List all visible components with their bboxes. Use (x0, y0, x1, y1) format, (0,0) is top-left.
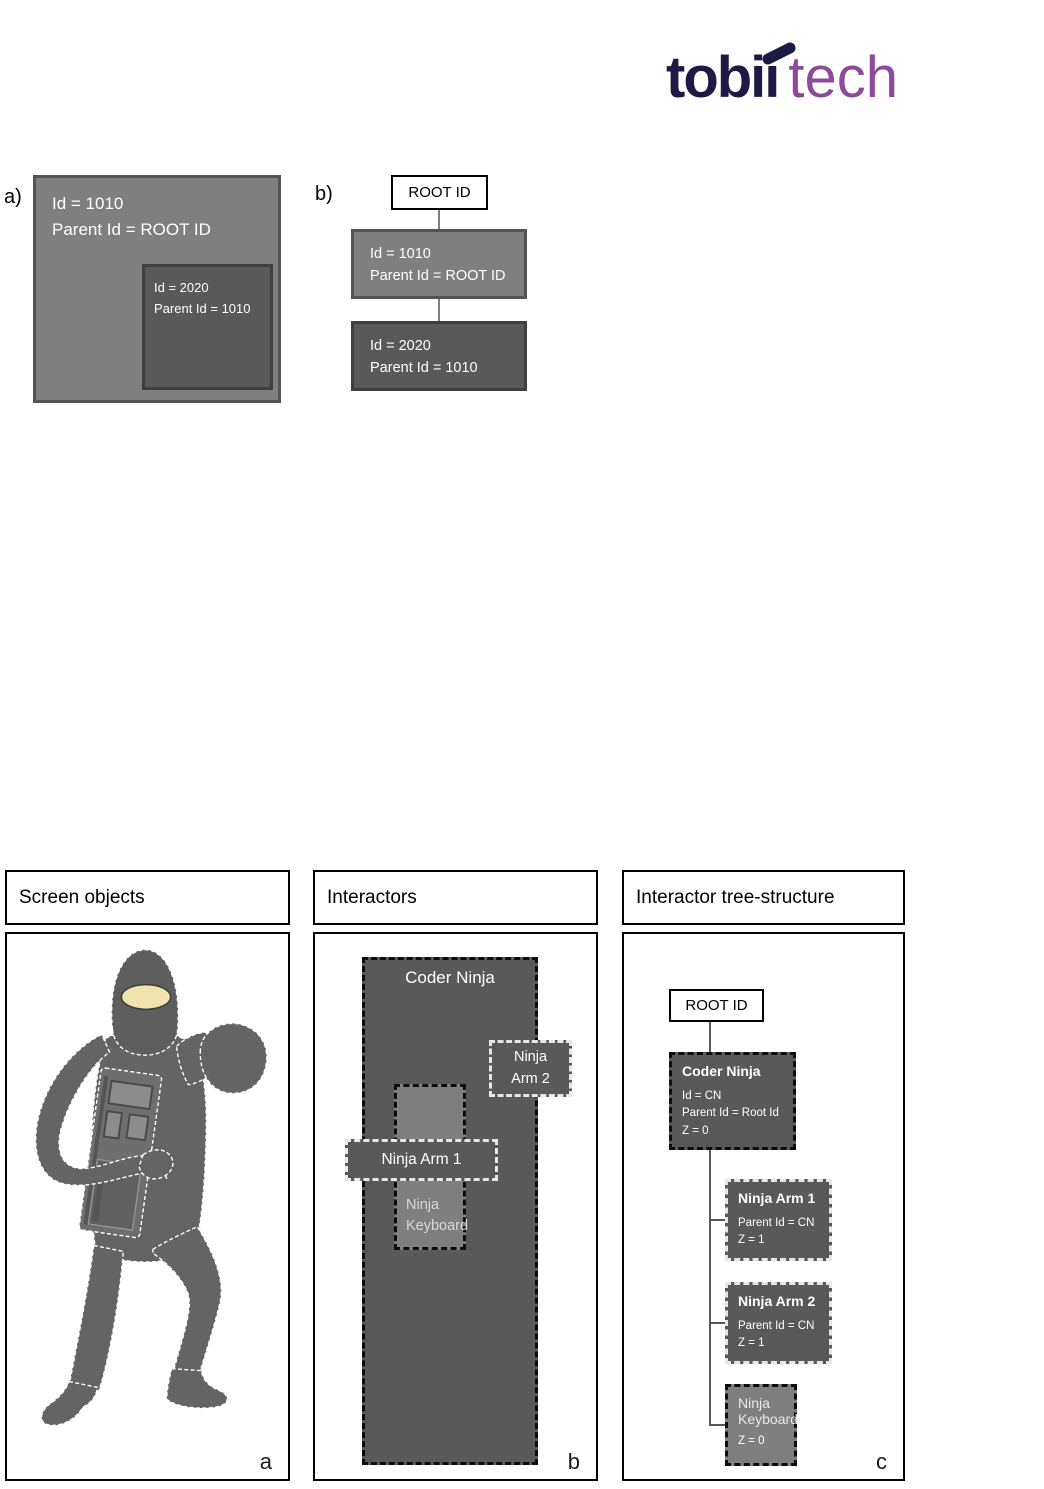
tree-branch-arm1 (709, 1219, 725, 1221)
coder-ninja-label: Coder Ninja (365, 968, 535, 988)
tree-arm2-title: Ninja Arm 2 (738, 1293, 819, 1309)
diagram-b-node2-line1: Id = 2020 (370, 335, 524, 357)
tree-coder-ninja-parent: Parent Id = Root Id (682, 1105, 783, 1122)
panel-title-screen-objects: Screen objects (19, 887, 145, 909)
tobii-tech-logo: tobiitech (666, 44, 898, 114)
ninja-keyboard-label-line2: Keyboard (406, 1216, 468, 1237)
ninja-keyboard-label-line1: Ninja (406, 1195, 468, 1216)
tree-arm2-parent: Parent Id = CN (738, 1318, 819, 1335)
diagram-a-outer-line1: Id = 1010 (52, 191, 262, 217)
tree-keyboard-title-line1: Ninja (738, 1395, 784, 1411)
diagram-a-inner-box: Id = 2020 Parent Id = 1010 (142, 264, 273, 390)
ninja-arm-1-interactor-box: Ninja Arm 1 (345, 1139, 498, 1181)
panel-title-interactors: Interactors (327, 887, 417, 909)
tree-arm1-title: Ninja Arm 1 (738, 1190, 819, 1206)
tree-keyboard-z: Z = 0 (738, 1433, 784, 1450)
diagram-b-node2-line2: Parent Id = 1010 (370, 357, 524, 379)
ninja-arm-2-interactor-box: Ninja Arm 2 (489, 1040, 572, 1097)
logo-suffix-text: tech (788, 45, 898, 110)
panel-interactors: Coder Ninja Ninja Keyboard Ninja Arm 2 N… (313, 932, 598, 1481)
diagram-b-root-text: ROOT ID (408, 184, 470, 201)
ninja-arm-2-label-line1: Ninja (514, 1047, 547, 1068)
tree-root-node: ROOT ID (669, 989, 764, 1022)
tree-coder-ninja-id: Id = CN (682, 1088, 783, 1105)
tree-coder-ninja-z: Z = 0 (682, 1123, 783, 1140)
tree-arm1-z: Z = 1 (738, 1232, 819, 1249)
diagram-b-node-2020: Id = 2020 Parent Id = 1010 (351, 321, 527, 391)
tree-node-ninja-arm-1: Ninja Arm 1 Parent Id = CN Z = 1 (725, 1179, 832, 1261)
panel-tree-structure: ROOT ID Coder Ninja Id = CN Parent Id = … (622, 932, 905, 1481)
panel-header-screen-objects: Screen objects (5, 870, 290, 925)
panel-corner-label-c: c (876, 1449, 887, 1475)
tree-branch-keyboard (709, 1424, 725, 1426)
tree-keyboard-title-line2: Keyboard (738, 1411, 784, 1427)
ninja-arm-2-label-line2: Arm 2 (511, 1069, 550, 1090)
ninja-figure-illustration (7, 934, 288, 1479)
tree-root-text: ROOT ID (685, 997, 747, 1014)
panel-header-interactors: Interactors (313, 870, 598, 925)
tree-coder-ninja-title: Coder Ninja (682, 1063, 783, 1079)
diagram-b-node-1010: Id = 1010 Parent Id = ROOT ID (351, 229, 527, 299)
tree-connector-trunk (709, 1150, 711, 1426)
tree-connector-root (709, 1022, 711, 1052)
tree-node-ninja-arm-2: Ninja Arm 2 Parent Id = CN Z = 1 (725, 1282, 832, 1364)
diagram-b-connector-2 (438, 299, 440, 321)
diagram-b-node1-line1: Id = 1010 (370, 243, 524, 265)
logo-linked-dots-icon (758, 40, 804, 68)
panel-corner-label-b: b (568, 1449, 580, 1475)
tree-node-coder-ninja: Coder Ninja Id = CN Parent Id = Root Id … (669, 1052, 796, 1150)
diagram-a-inner-line1: Id = 2020 (154, 278, 261, 299)
tree-arm1-parent: Parent Id = CN (738, 1215, 819, 1232)
ninja-arm-1-label: Ninja Arm 1 (381, 1151, 461, 1169)
diagram-b-root-node: ROOT ID (391, 175, 488, 210)
diagram-b-connector-1 (438, 210, 440, 229)
document-page: tobiitech a) Id = 1010 Parent Id = ROOT … (0, 0, 1044, 1489)
tree-node-ninja-keyboard: Ninja Keyboard Z = 0 (725, 1384, 797, 1466)
diagram-b-label: b) (315, 183, 333, 206)
diagram-a-inner-line2: Parent Id = 1010 (154, 299, 261, 320)
diagram-a-outer-line2: Parent Id = ROOT ID (52, 217, 262, 243)
tree-arm2-z: Z = 1 (738, 1335, 819, 1352)
diagram-b-node1-line2: Parent Id = ROOT ID (370, 265, 524, 287)
diagram-a-label: a) (4, 186, 22, 209)
tree-branch-arm2 (709, 1322, 725, 1324)
panel-screen-objects: a (5, 932, 290, 1481)
panel-corner-label-a: a (260, 1449, 272, 1475)
panel-title-tree-structure: Interactor tree-structure (636, 887, 835, 909)
panel-header-tree-structure: Interactor tree-structure (622, 870, 905, 925)
